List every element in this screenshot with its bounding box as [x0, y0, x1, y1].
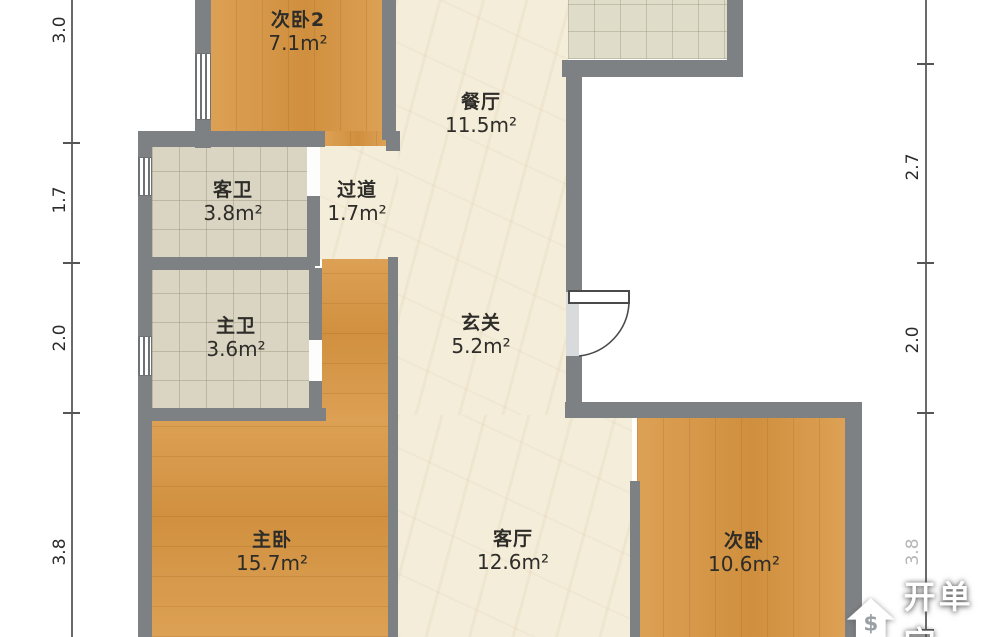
room-area: 11.5m² — [411, 113, 551, 138]
room-name: 客厅 — [443, 528, 583, 550]
room-name: 次卧 — [674, 530, 814, 552]
room-label-living: 客厅 12.6m² — [443, 528, 583, 575]
room-name: 玄关 — [411, 312, 551, 334]
dimension-label: 2.0 — [902, 318, 924, 362]
room-area: 12.6m² — [443, 550, 583, 575]
dollar-glyph: $ — [863, 611, 878, 636]
room-area: 3.8m² — [163, 201, 303, 226]
dimension-label: 3.0 — [49, 8, 71, 52]
room-area: 5.2m² — [411, 334, 551, 359]
dimension-label: 1.7 — [49, 178, 71, 222]
dimension-label: 3.8 — [49, 530, 71, 574]
dimension-tick — [917, 412, 934, 414]
room-area: 10.6m² — [674, 552, 814, 577]
dimension-line-right — [925, 0, 927, 637]
room-name: 次卧2 — [228, 9, 368, 31]
room-name: 餐厅 — [411, 91, 551, 113]
room-area: 1.7m² — [287, 201, 427, 226]
floor-plan: 次卧2 7.1m² 餐厅 11.5m² 客卫 3.8m² 过道 1.7m² 主卫… — [0, 0, 1000, 637]
dimension-tick — [63, 262, 80, 264]
watermark-text: 开单宝 — [904, 572, 1000, 637]
room-area: 3.6m² — [166, 337, 306, 362]
dimension-tick — [917, 262, 934, 264]
dimension-tick — [63, 412, 80, 414]
room-label-master-bedroom: 主卧 15.7m² — [202, 529, 342, 576]
dimension-tick — [63, 142, 80, 144]
room-name: 客卫 — [163, 179, 303, 201]
room-label-dining: 餐厅 11.5m² — [411, 91, 551, 138]
room-name: 过道 — [287, 179, 427, 201]
room-name: 主卧 — [202, 529, 342, 551]
dimension-line-left — [71, 0, 73, 637]
dimension-label: 3.8 — [902, 530, 924, 574]
room-name: 主卫 — [166, 315, 306, 337]
watermark: $ 开单宝 — [846, 572, 1000, 637]
room-label-corridor: 过道 1.7m² — [287, 179, 427, 226]
room-area: 15.7m² — [202, 551, 342, 576]
dimension-tick — [917, 63, 934, 65]
room-label-guest-bath: 客卫 3.8m² — [163, 179, 303, 226]
room-label-master-bath: 主卫 3.6m² — [166, 315, 306, 362]
dimension-label: 2.0 — [49, 316, 71, 360]
room-area: 7.1m² — [228, 31, 368, 56]
room-label-entry: 玄关 5.2m² — [411, 312, 551, 359]
room-label-bedroom2: 次卧2 7.1m² — [228, 9, 368, 56]
house-dollar-icon: $ — [846, 595, 896, 637]
room-label-bedroom: 次卧 10.6m² — [674, 530, 814, 577]
dimension-label: 2.7 — [902, 145, 924, 189]
